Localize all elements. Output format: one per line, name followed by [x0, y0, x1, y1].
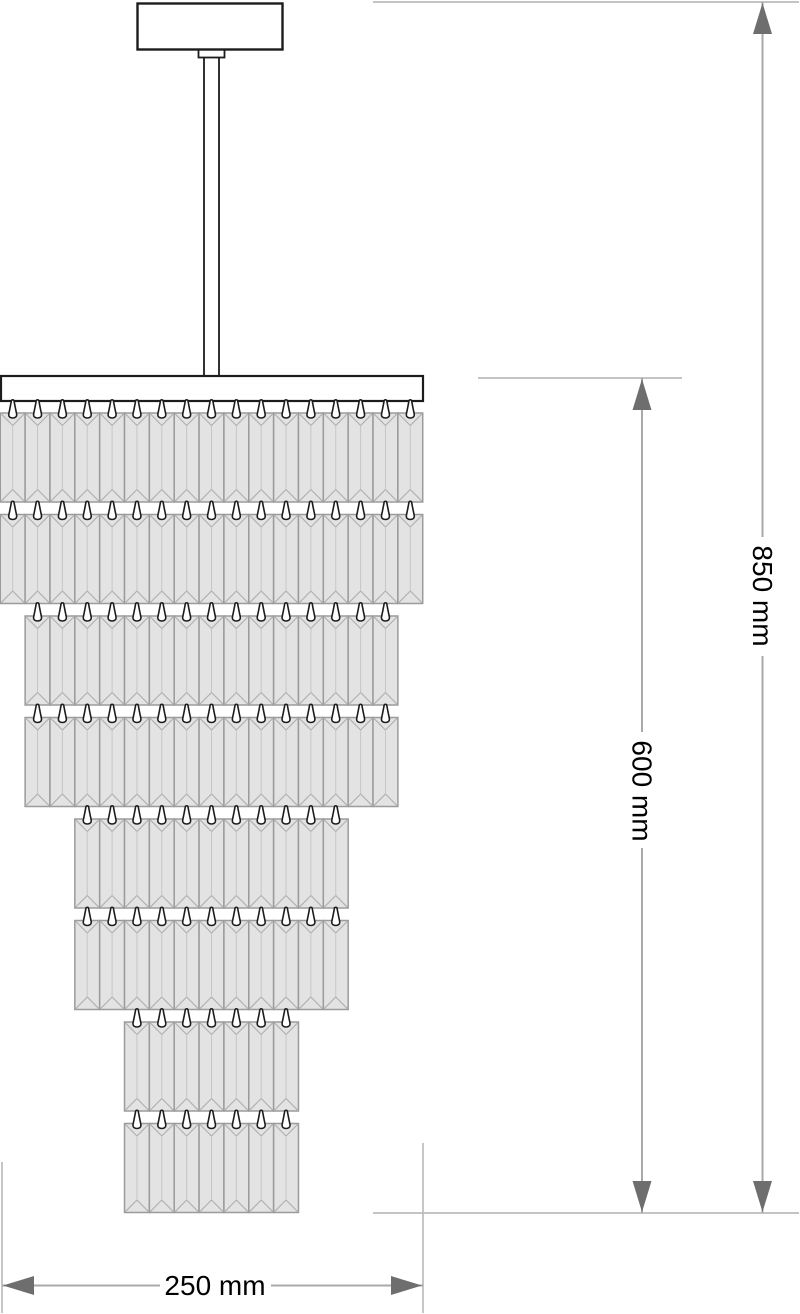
fixture-group [1, 4, 423, 402]
crystal-hook [208, 1110, 216, 1128]
crystal-hook [9, 400, 17, 418]
body-height-dimension-label: 600 mm [627, 740, 658, 841]
crystal-hook [133, 1009, 141, 1027]
chandelier-dimension-diagram: 850 mm 600 mm 250 mm [0, 0, 800, 1314]
crystal-hook [83, 907, 91, 925]
crystal-hook [58, 501, 66, 519]
crystal-hook [158, 806, 166, 824]
crystal-hook [83, 704, 91, 722]
crystal-hook [232, 603, 240, 621]
crystal-hook [133, 806, 141, 824]
arrowhead-down [753, 1181, 772, 1212]
crystal-hook [332, 400, 340, 418]
crystal-tiers-group [0, 400, 422, 1213]
crystal-hook [83, 603, 91, 621]
crystal-hook [232, 704, 240, 722]
crystal-hook [232, 806, 240, 824]
crystal-hook [133, 907, 141, 925]
crystal-hook [34, 400, 42, 418]
crystal-hook [208, 501, 216, 519]
crystal-hook [257, 400, 265, 418]
crystal-hook [108, 806, 116, 824]
crystal-hook [257, 704, 265, 722]
crystal-hook [282, 1110, 290, 1128]
crystal-hook [232, 501, 240, 519]
tier-1 [0, 400, 422, 604]
arrowhead-up [633, 379, 652, 410]
crystal-hook [133, 400, 141, 418]
tier-4 [125, 1009, 299, 1213]
crystal-hook [58, 704, 66, 722]
crystal-hook [282, 907, 290, 925]
crystal-hook [357, 603, 365, 621]
crystal-hook [133, 1110, 141, 1128]
crystal-hook [307, 400, 315, 418]
crystal-hook [83, 501, 91, 519]
crystal-hook [208, 1009, 216, 1027]
arrowhead-right [391, 1276, 422, 1295]
crystal-hook [257, 603, 265, 621]
crystal-hook [208, 907, 216, 925]
crystal-hook [34, 704, 42, 722]
crystal-hook [183, 603, 191, 621]
crystal-hook [282, 501, 290, 519]
crystal-hook [381, 603, 389, 621]
drawing-canvas: 850 mm 600 mm 250 mm [0, 0, 800, 1314]
crystal-hook [332, 704, 340, 722]
crystal-hook [357, 704, 365, 722]
crystal-hook [183, 400, 191, 418]
crystal-hook [208, 704, 216, 722]
crystal-row [25, 603, 398, 705]
crystal-hook [83, 806, 91, 824]
crystal-hook [183, 1110, 191, 1128]
crystal-hook [83, 400, 91, 418]
crystal-hook [34, 501, 42, 519]
hanging-rod [204, 51, 219, 377]
crystal-row [125, 1009, 299, 1111]
crystal-hook [307, 501, 315, 519]
crystal-hook [183, 501, 191, 519]
crystal-hook [133, 603, 141, 621]
crystal-row [75, 806, 348, 908]
crystal-hook [357, 400, 365, 418]
crystal-hook [133, 704, 141, 722]
arrowhead-down [633, 1181, 652, 1212]
crystal-hook [183, 704, 191, 722]
crystal-hook [232, 400, 240, 418]
crystal-hook [332, 907, 340, 925]
crystal-hook [158, 400, 166, 418]
crystal-hook [282, 1009, 290, 1027]
crystal-hook [307, 806, 315, 824]
crystal-row [25, 704, 398, 806]
crystal-hook [257, 501, 265, 519]
crystal-hook [282, 603, 290, 621]
crystal-hook [183, 907, 191, 925]
overall-height-dimension-label: 850 mm [747, 545, 778, 646]
crystal-hook [232, 1110, 240, 1128]
crystal-hook [58, 603, 66, 621]
top-plate [1, 376, 423, 401]
crystal-hook [158, 603, 166, 621]
crystal-row [0, 501, 422, 603]
crystal-hook [58, 400, 66, 418]
crystal-hook [158, 1009, 166, 1027]
crystal-hook [108, 704, 116, 722]
crystal-hook [208, 806, 216, 824]
crystal-hook [208, 603, 216, 621]
crystal-hook [108, 603, 116, 621]
crystal-hook [232, 907, 240, 925]
crystal-hook [108, 907, 116, 925]
crystal-hook [158, 1110, 166, 1128]
crystal-row [0, 400, 422, 502]
crystal-hook [108, 501, 116, 519]
crystal-hook [257, 1009, 265, 1027]
crystal-hook [282, 704, 290, 722]
crystal-hook [158, 907, 166, 925]
crystal-hook [183, 806, 191, 824]
crystal-hook [332, 501, 340, 519]
arrowhead-up [753, 3, 772, 34]
crystal-hook [133, 501, 141, 519]
crystal-hook [232, 1009, 240, 1027]
ceiling-canopy [138, 4, 283, 50]
crystal-hook [406, 400, 414, 418]
crystal-row [75, 907, 348, 1009]
crystal-hook [307, 907, 315, 925]
crystal-hook [183, 1009, 191, 1027]
crystal-hook [108, 400, 116, 418]
crystal-hook [406, 501, 414, 519]
crystal-hook [307, 603, 315, 621]
crystal-hook [257, 907, 265, 925]
crystal-hook [332, 806, 340, 824]
crystal-row [125, 1110, 299, 1212]
crystal-hook [158, 704, 166, 722]
crystal-hook [34, 603, 42, 621]
crystal-hook [282, 806, 290, 824]
arrowhead-left [3, 1276, 34, 1295]
crystal-hook [381, 704, 389, 722]
tier-3 [75, 806, 348, 1010]
tier-2 [25, 603, 398, 807]
crystal-hook [332, 603, 340, 621]
crystal-hook [257, 806, 265, 824]
crystal-hook [158, 501, 166, 519]
crystal-hook [357, 501, 365, 519]
crystal-hook [208, 400, 216, 418]
crystal-hook [307, 704, 315, 722]
width-dimension-label: 250 mm [164, 1270, 265, 1301]
crystal-hook [257, 1110, 265, 1128]
crystal-hook [282, 400, 290, 418]
crystal-hook [381, 501, 389, 519]
crystal-hook [381, 400, 389, 418]
crystal-hook [9, 501, 17, 519]
